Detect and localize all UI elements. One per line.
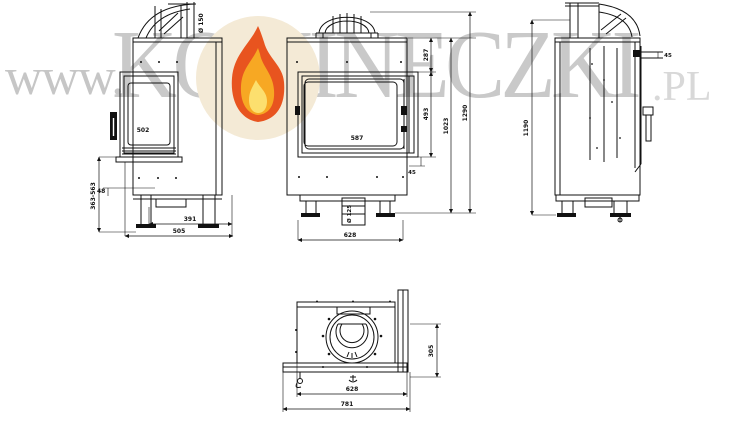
dim-air-inlet: Ø 125 xyxy=(346,205,353,223)
body-outline xyxy=(555,38,641,195)
plan-view: 305 628 781 xyxy=(283,290,441,412)
side-view-left: Ø 150 502 363-563 48 391 505 xyxy=(90,2,233,236)
base-and-legs xyxy=(133,195,222,224)
dim-door-gap: 45 xyxy=(408,170,416,176)
handle-hook-ring xyxy=(298,379,303,384)
collar-bolts xyxy=(322,318,383,356)
foot-left xyxy=(136,224,156,228)
side-view-right: 45 1190 xyxy=(523,3,672,222)
hinge-left xyxy=(295,106,300,115)
anchor-mark xyxy=(349,375,357,382)
foot-left xyxy=(557,213,576,217)
foot-right xyxy=(198,224,219,228)
latch-right xyxy=(401,106,407,115)
dim-leg-range: 363-563 xyxy=(90,182,97,210)
dim-depth-outer: 505 xyxy=(173,228,186,235)
latch-right-lower xyxy=(401,126,407,132)
door-and-glass xyxy=(298,72,418,157)
flue-stack xyxy=(565,3,640,38)
flue-stack xyxy=(138,2,196,38)
dim-side-depth: 305 xyxy=(428,345,435,358)
front-view: 587 Ø 125 287 493 1023 1290 45 628 xyxy=(287,12,476,240)
foot-left xyxy=(301,213,320,217)
screw-dots xyxy=(295,301,391,369)
dim-side-glass: 502 xyxy=(137,127,150,134)
ext-lines xyxy=(532,20,570,215)
dim-ledge-offset: 45 xyxy=(664,53,672,59)
dim-total-height: 1190 xyxy=(523,120,530,137)
flue-collar xyxy=(326,307,378,363)
dim-flue-diameter: Ø 150 xyxy=(198,13,205,33)
panel-dots xyxy=(589,63,621,149)
dim-depth-inner: 391 xyxy=(184,216,197,223)
dim-front-glass-width: 587 xyxy=(351,135,364,142)
front-glass-panel xyxy=(283,363,407,372)
door-handle xyxy=(643,107,653,141)
dim-overall-width: 781 xyxy=(341,401,354,408)
ledge xyxy=(640,52,663,58)
technical-drawing-page: www. KOMINECZKI .PL Ø 150 50 xyxy=(0,0,750,422)
foot-right xyxy=(610,213,631,217)
screw-dots xyxy=(138,61,178,179)
dim-glass-height: 493 xyxy=(423,108,430,121)
dim-top-section: 287 xyxy=(423,49,430,62)
dim-total-height: 1290 xyxy=(462,105,469,122)
dim-body-height: 1023 xyxy=(443,118,450,135)
dim-base-lip: 48 xyxy=(97,188,105,195)
dim-body-width: 628 xyxy=(344,232,357,239)
base-and-legs xyxy=(556,195,639,222)
door-and-glass xyxy=(116,72,182,162)
hinge-top xyxy=(633,50,640,57)
side-glass-panel xyxy=(398,290,408,372)
foot-right xyxy=(376,213,395,217)
dome-deflector xyxy=(316,13,378,38)
dim-inner-width: 628 xyxy=(346,386,359,393)
drawing-canvas: Ø 150 502 363-563 48 391 505 xyxy=(0,0,750,422)
